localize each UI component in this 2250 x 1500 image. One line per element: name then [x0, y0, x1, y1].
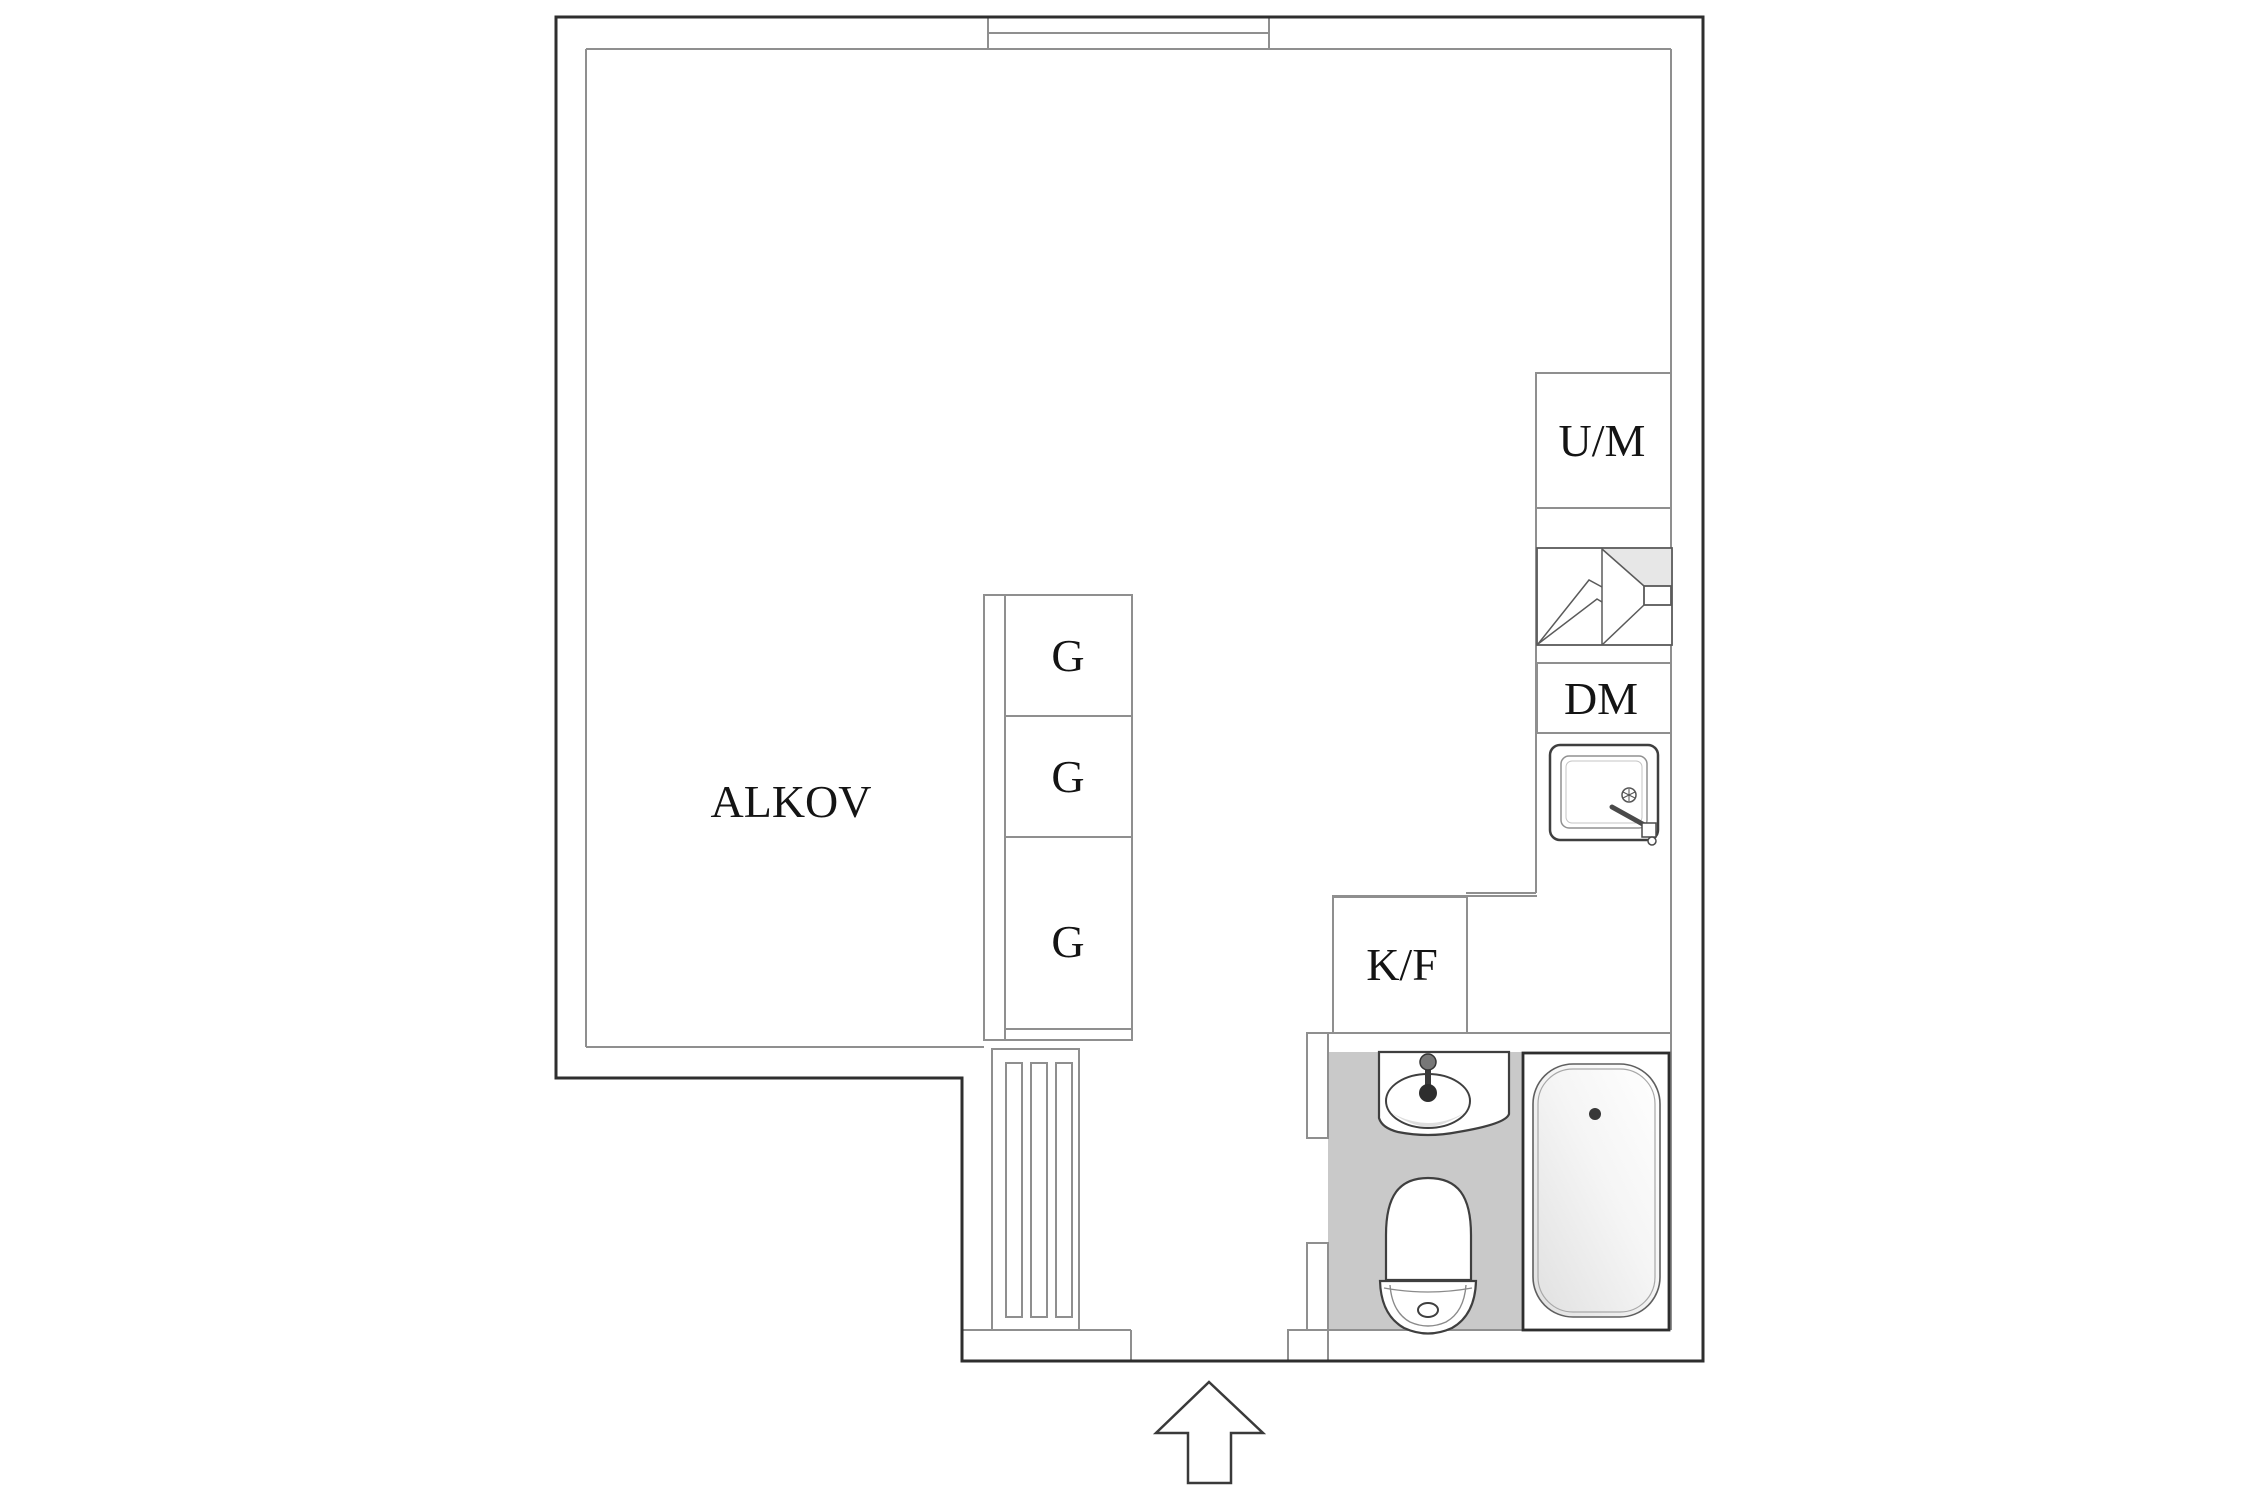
floor-plan-svg: ALKOV G G G U/M DM K/F: [0, 0, 2250, 1500]
toilet-icon: [1380, 1178, 1476, 1334]
wardrobe-side-panel: [984, 595, 1005, 1040]
washbasin-icon: [1379, 1052, 1509, 1135]
alcove-room-label: ALKOV: [711, 776, 872, 827]
slatted-panel: [992, 1049, 1079, 1330]
wardrobe-label-1: G: [1051, 630, 1084, 681]
wardrobe-label-3: G: [1051, 916, 1084, 967]
dishwasher-label: DM: [1564, 673, 1638, 724]
stove-icon: [1537, 548, 1672, 645]
oven-microwave-label: U/M: [1559, 415, 1646, 466]
kitchen-sink-icon: [1550, 745, 1658, 845]
wardrobe-label-2: G: [1051, 751, 1084, 802]
fridge-freezer-label: K/F: [1366, 939, 1438, 990]
floor-plan-canvas: ALKOV G G G U/M DM K/F: [0, 0, 2250, 1500]
bathtub-icon: [1523, 1053, 1669, 1330]
